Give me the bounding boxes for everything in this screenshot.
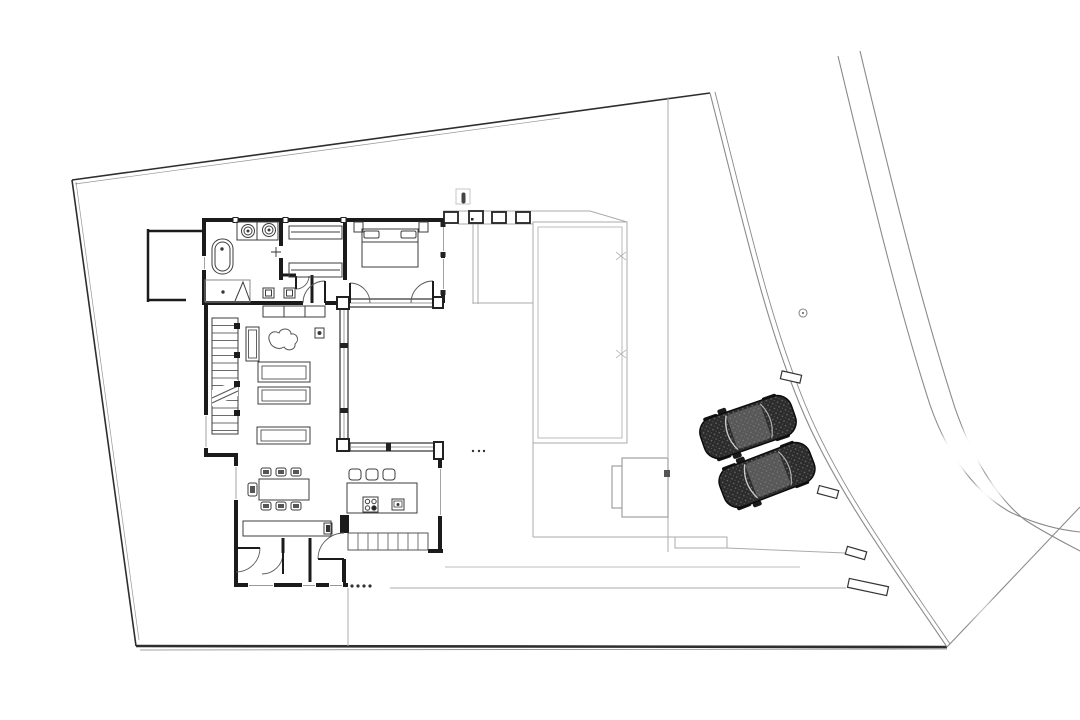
outdoor-shower-icon	[462, 193, 466, 204]
corner-column	[433, 297, 443, 308]
mullion	[441, 252, 446, 257]
site-plan-drawing	[0, 0, 1080, 720]
chair-seat	[293, 504, 299, 508]
smudge	[973, 481, 1003, 503]
path-dot	[483, 450, 485, 452]
smudge	[928, 582, 988, 618]
wall-column	[341, 218, 346, 223]
bathtub-drain	[221, 248, 223, 250]
shower-drain	[222, 291, 224, 293]
stair-newel	[234, 410, 240, 416]
pergola-column	[516, 212, 530, 223]
corner-column	[337, 297, 349, 309]
mullion	[340, 408, 348, 413]
pool-house	[622, 458, 668, 517]
pergola-column	[469, 211, 483, 223]
chair-seat	[278, 504, 284, 508]
chair-seat	[263, 470, 269, 474]
smudge	[914, 520, 946, 544]
pool-house-unit	[664, 470, 670, 477]
burner	[372, 506, 376, 510]
pergola-column	[492, 212, 506, 223]
mullion	[340, 343, 348, 348]
mullion	[386, 443, 391, 451]
path-dot	[356, 584, 359, 587]
stair-newel	[234, 323, 240, 329]
column-dot	[471, 218, 474, 221]
corner-column	[434, 442, 443, 459]
door-jamb-block	[340, 515, 349, 533]
stair-newel	[234, 381, 240, 387]
path-dot	[472, 450, 474, 452]
stair-newel	[234, 352, 240, 358]
mullion	[441, 290, 446, 295]
sink-drain	[268, 229, 270, 231]
pergola-column	[444, 212, 458, 223]
smudge	[884, 414, 920, 442]
path-dot	[350, 584, 353, 587]
survey-point-dot	[802, 312, 804, 314]
chair-seat	[250, 486, 255, 493]
floor-plan-canvas	[0, 0, 1080, 720]
chair-seat	[293, 470, 299, 474]
chair-seat	[263, 504, 269, 508]
boundary-south	[136, 646, 947, 647]
path-dot	[478, 450, 480, 452]
tv-screen	[326, 525, 330, 532]
path-dot	[368, 584, 371, 587]
smudge	[935, 432, 991, 472]
paper-background	[0, 0, 1080, 720]
path-dot	[362, 584, 365, 587]
wall-column	[283, 218, 288, 223]
sink-drain	[247, 230, 249, 232]
side-table-dot	[318, 332, 321, 335]
chair-seat	[278, 470, 284, 474]
faucet-dot	[397, 504, 399, 506]
corner-column	[337, 439, 349, 451]
